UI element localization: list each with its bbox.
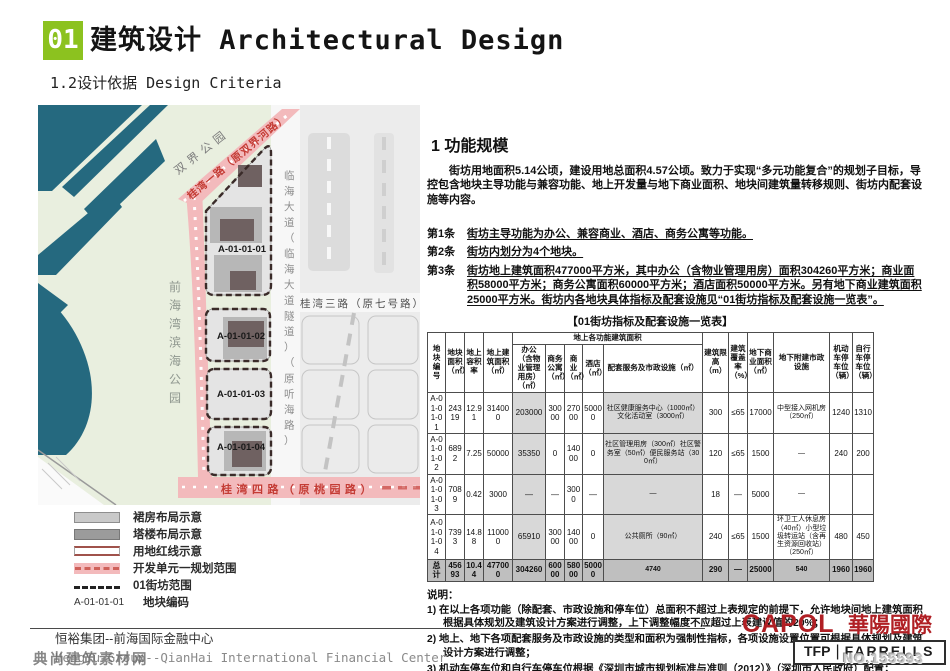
table-cell: ≤65 (729, 393, 748, 434)
capol-logo-zh: 華陽國際 (848, 614, 932, 637)
site-plan-map: 双界公园 桂湾一路（原双界河路） 前海湾滨海公园 临海大道（临海大道隧道）（原听… (38, 105, 420, 505)
legend-swatch-unit-range (74, 563, 120, 574)
table-cell: 110000 (484, 515, 513, 559)
table-cell: 总计 (428, 559, 446, 581)
indicator-table: 地块编号 地块面积（㎡） 地上容积率 地上建筑面积（㎡） 地上各功能建筑面积 建… (427, 332, 874, 581)
project-name-zh: 恒裕集团--前海国际金融中心 (55, 632, 446, 647)
table-cell: 0 (546, 433, 565, 474)
col-header: 地上容积率 (465, 333, 484, 393)
table-row: A-01-01-04739314.88110000659103000014000… (428, 515, 874, 559)
col-header: 地下附建市政设施 (774, 333, 830, 393)
legend-swatch-podium (74, 512, 120, 523)
table-cell: 社区管理用房（300㎡）社区警务室（50㎡）便民服务站（300㎡） (604, 433, 703, 474)
table-cell: 10.44 (465, 559, 484, 581)
col-header: 配套服务及市政设施（㎡） (604, 345, 703, 393)
legend-item: 塔楼布局示意 (74, 528, 237, 540)
legend-label: 用地红线示意 (133, 543, 202, 559)
table-cell: 60000 (546, 559, 565, 581)
table-cell: 50000 (583, 393, 604, 434)
article-text: 街坊主导功能为办公、兼容商业、酒店、商务公寓等功能。 (467, 227, 753, 242)
legend-label: 地块编码 (143, 594, 189, 610)
label-road-guiwan4: 桂湾四路（原桃园路） (220, 482, 376, 496)
table-cell: 0 (583, 433, 604, 474)
table-cell: 4740 (604, 559, 703, 581)
table-cell: 公共厕所（90㎡） (604, 515, 703, 559)
table-caption: 【01街坊指标及配套设施一览表】 (427, 313, 873, 329)
table-cell: 1240 (830, 393, 853, 434)
label-plot-4: A-01-01-04 (217, 442, 266, 453)
legend-swatch-block-range (74, 586, 120, 589)
tower-3 (230, 271, 256, 290)
col-header: 建筑限高（m） (703, 333, 729, 393)
intro-paragraph: 街坊用地面积5.14公顷，建设用地总面积4.57公顷。致力于实现“多元功能复合”… (427, 164, 925, 207)
table-cell: 7089 (446, 474, 465, 515)
tfp-logo-separator: | (835, 643, 839, 660)
legend: 裙房布局示意塔楼布局示意用地红线示意开发单元一规划范围01街坊范围A-01-01… (74, 511, 237, 613)
table-cell (830, 474, 853, 515)
table-cell: — (583, 474, 604, 515)
legend-item: A-01-01-01地块编码 (74, 596, 237, 608)
table-cell: 5000 (748, 474, 774, 515)
table-cell: — (774, 433, 830, 474)
section-title: 1 功能规模 (431, 132, 925, 156)
article-text: 街坊内划分为4个地块。 (467, 245, 583, 260)
table-cell: 240 (703, 515, 729, 559)
notes-title: 说明： (427, 587, 927, 602)
table-cell: A-01-01-04 (428, 515, 446, 559)
table-cell: 0 (583, 515, 604, 559)
col-header: 地块面积（㎡） (446, 333, 465, 393)
col-header: 酒店（㎡） (583, 345, 604, 393)
table-row: A-01-01-0268927.2550000353500140000社区管理用… (428, 433, 874, 474)
page-subtitle: 1.2设计依据 Design Criteria (50, 74, 282, 92)
table-cell: 120 (703, 433, 729, 474)
table-cell: 0.42 (465, 474, 484, 515)
table-cell: 3000 (565, 474, 583, 515)
table-cell: 50000 (583, 559, 604, 581)
label-plot-1: A-01-01-01 (218, 244, 267, 255)
table-cell: 14000 (565, 433, 583, 474)
table-cell: — (774, 474, 830, 515)
col-header: 商业（㎡） (565, 345, 583, 393)
legend-label: 裙房布局示意 (133, 509, 202, 525)
guiwan4-red-dashes (382, 486, 420, 490)
table-body: A-01-01-012431912.9131400020300030000270… (428, 393, 874, 581)
table-cell: 30000 (546, 515, 565, 559)
legend-item: 裙房布局示意 (74, 511, 237, 523)
legend-label: 塔楼布局示意 (133, 526, 202, 542)
legend-label: 开发单元一规划范围 (133, 560, 237, 576)
legend-plot-code: A-01-01-01 (74, 597, 130, 608)
table-cell: 477000 (484, 559, 513, 581)
col-header: 地下商业面积（㎡） (748, 333, 774, 393)
table-cell: 18 (703, 474, 729, 515)
table-cell: 24319 (446, 393, 465, 434)
page: 01 建筑设计 Architectural Design 1.2设计依据 Des… (0, 0, 950, 671)
site-plan-svg: 双界公园 桂湾一路（原双界河路） 前海湾滨海公园 临海大道（临海大道隧道）（原听… (38, 105, 420, 505)
table-cell: 3000 (484, 474, 513, 515)
table-cell: 240 (830, 433, 853, 474)
table-cell: — (513, 474, 546, 515)
legend-item: 用地红线示意 (74, 545, 237, 557)
table-cell: 14.88 (465, 515, 484, 559)
article-text: 街坊地上建筑面积477000平方米，其中办公（含物业管理用房）面积304260平… (467, 264, 925, 308)
label-road-guiwan3: 桂湾三路（原七号路） (300, 297, 420, 310)
table-cell: 58000 (565, 559, 583, 581)
capol-logo-en: CAPOL (742, 610, 835, 638)
table-cell: 1310 (853, 393, 874, 434)
col-header: 办公（含物业管理用房）（㎡） (513, 345, 546, 393)
table-cell: 环卫工人休息房（40㎡）小型垃圾转运站（含再生资源回收站）（250㎡） (774, 515, 830, 559)
table-cell: 450 (853, 515, 874, 559)
tfp-logo-text: TFP (804, 643, 830, 659)
table-cell: 12.91 (465, 393, 484, 434)
article-row: 第2条街坊内划分为4个地块。 (427, 245, 925, 260)
table-cell: 314000 (484, 393, 513, 434)
table-cell: 540 (774, 559, 830, 581)
tower-1 (238, 165, 262, 187)
table-total-row: 总计4569310.444770003042606000058000500004… (428, 559, 874, 581)
table-cell (853, 474, 874, 515)
footer-project: 恒裕集团--前海国际金融中心 HengYu Group--QianHai Int… (55, 632, 446, 665)
table-cell: A-01-01-02 (428, 433, 446, 474)
col-header: 商务公寓（㎡） (546, 345, 565, 393)
table-cell: 1960 (853, 559, 874, 581)
table-cell: A-01-01-01 (428, 393, 446, 434)
legend-swatch-tower (74, 529, 120, 540)
table-cell: — (604, 474, 703, 515)
table-cell: 社区健康服务中心（1000㎡）文化活动室（3000㎡） (604, 393, 703, 434)
table-cell: 35350 (513, 433, 546, 474)
table-cell: 25000 (748, 559, 774, 581)
legend-swatch-redline (74, 546, 120, 556)
table-row: A-01-01-012431912.9131400020300030000270… (428, 393, 874, 434)
article-number: 第1条 (427, 227, 467, 242)
table-cell: ≤65 (729, 433, 748, 474)
table-cell: 1500 (748, 515, 774, 559)
table-cell: 200 (853, 433, 874, 474)
table-cell: 480 (830, 515, 853, 559)
col-header: 建筑覆盖率（%） (729, 333, 748, 393)
article-number: 第2条 (427, 245, 467, 260)
section-number-badge: 01 (43, 21, 83, 60)
tower-2 (220, 219, 254, 241)
footer-divider (30, 628, 705, 629)
site-watermark: 典尚建筑素材网 (33, 648, 149, 669)
col-header: 机动车停车位（辆） (830, 333, 853, 393)
col-header: 地上建筑面积（㎡） (484, 333, 513, 393)
table-cell: 27000 (565, 393, 583, 434)
table-cell: 304260 (513, 559, 546, 581)
table-cell: 7.25 (465, 433, 484, 474)
table-cell: 1960 (830, 559, 853, 581)
label-plot-2: A-01-01-02 (217, 331, 265, 342)
table-cell: A-01-01-03 (428, 474, 446, 515)
table-cell: 65910 (513, 515, 546, 559)
table-cell: — (546, 474, 565, 515)
capol-logo: CAPOL 華陽國際 (742, 609, 932, 639)
legend-item: 01街坊范围 (74, 579, 237, 591)
table-cell: 17000 (748, 393, 774, 434)
serial-watermark: NO.155593 (843, 650, 924, 666)
project-name-en-wrap: HengYu Group--QianHai International Fina… (55, 649, 446, 665)
label-park-left: 前海湾滨海公园 (169, 279, 181, 405)
table-cell: 1500 (748, 433, 774, 474)
page-title: 建筑设计 Architectural Design (90, 24, 564, 58)
article-row: 第1条街坊主导功能为办公、兼容商业、酒店、商务公寓等功能。 (427, 227, 925, 242)
table-head: 地块编号 地块面积（㎡） 地上容积率 地上建筑面积（㎡） 地上各功能建筑面积 建… (428, 333, 874, 393)
label-plot-3: A-01-01-03 (217, 389, 265, 400)
table-cell: 7393 (446, 515, 465, 559)
table-cell: 30000 (546, 393, 565, 434)
legend-item: 开发单元一规划范围 (74, 562, 237, 574)
table-row: A-01-01-0370890.423000——3000——18—5000— (428, 474, 874, 515)
table-cell: 14000 (565, 515, 583, 559)
content-column: 1 功能规模 街坊用地面积5.14公顷，建设用地总面积4.57公顷。致力于实现“… (427, 132, 925, 671)
article-row: 第3条街坊地上建筑面积477000平方米，其中办公（含物业管理用房）面积3042… (427, 264, 925, 308)
table-cell: 中型接入网机房（250㎡） (774, 393, 830, 434)
articles: 第1条街坊主导功能为办公、兼容商业、酒店、商务公寓等功能。第2条街坊内划分为4个… (427, 227, 925, 308)
table-cell: — (729, 559, 748, 581)
table-cell: 203000 (513, 393, 546, 434)
col-group-header: 地上各功能建筑面积 (513, 333, 703, 345)
table-cell: 300 (703, 393, 729, 434)
article-number: 第3条 (427, 264, 467, 308)
table-cell: ≤65 (729, 515, 748, 559)
table-cell: 290 (703, 559, 729, 581)
col-header: 地块编号 (428, 333, 446, 393)
legend-label: 01街坊范围 (133, 577, 192, 593)
table-cell: 50000 (484, 433, 513, 474)
col-header: 自行车停车位（辆） (853, 333, 874, 393)
table-cell: 6892 (446, 433, 465, 474)
table-cell: 45693 (446, 559, 465, 581)
table-cell: — (729, 474, 748, 515)
